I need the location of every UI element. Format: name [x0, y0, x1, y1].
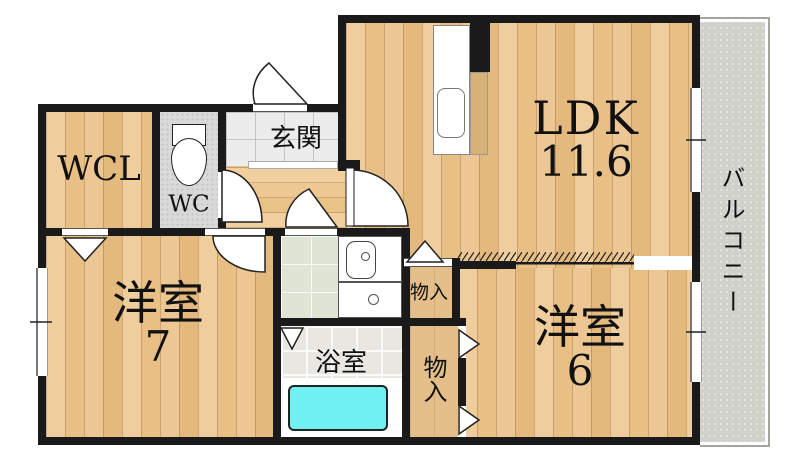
bedroom6-label: 洋室: [534, 304, 626, 350]
partition-hatch: [458, 252, 634, 262]
floor-plan: WCL WC 玄関 LDK 11.6 洋室 7 洋室 6 浴室 物入 物入 バル…: [0, 0, 800, 464]
bedroom7-door-arc: [213, 236, 265, 272]
bedroom7-label: 洋室: [112, 280, 204, 326]
storage-lower-folding-door-icon: [459, 406, 479, 434]
ldk-size-label: 11.6: [539, 141, 633, 183]
storage-upper-label: 物入: [410, 284, 448, 303]
door-overlay: [0, 0, 800, 464]
wcl-folding-door-icon: [64, 238, 106, 261]
wcl-label: WCL: [57, 152, 141, 186]
ldk-label: LDK: [532, 95, 640, 141]
bedroom6-size-label: 6: [567, 350, 594, 392]
wc-door-arc: [222, 170, 262, 222]
partition-open-gap: [634, 256, 692, 270]
entrance-label: 玄関: [270, 126, 322, 152]
washroom-door-arc: [286, 189, 337, 227]
storage-lower-folding-door-icon: [459, 330, 479, 358]
bedroom7-size-label: 7: [145, 326, 172, 368]
bathroom-label: 浴室: [315, 350, 367, 376]
ldk-door-leaf: [346, 168, 354, 226]
wc-label: WC: [168, 194, 209, 217]
balcony-label: バルコニー: [719, 166, 743, 321]
ldk-door-arc: [352, 170, 408, 226]
entrance-door-arc: [253, 63, 307, 104]
storage-upper-folding-door-icon: [407, 241, 443, 262]
partition-line: [516, 262, 634, 265]
bathroom-folding-door-icon: [281, 328, 303, 349]
storage-lower-label: 物入: [421, 355, 445, 403]
